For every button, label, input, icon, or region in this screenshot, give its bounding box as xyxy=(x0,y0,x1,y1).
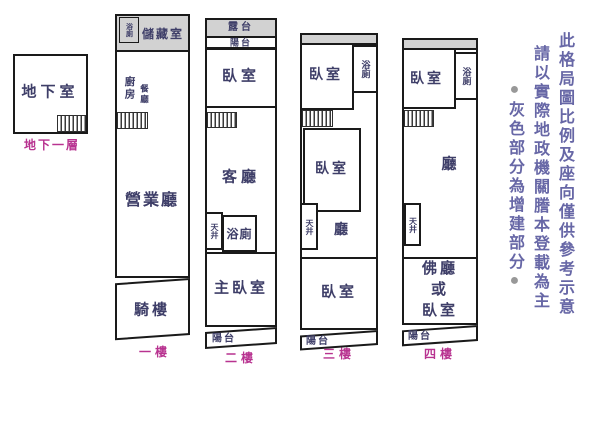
disclaimer-column-3: ●灰色部分為增建部分● xyxy=(502,32,527,421)
disclaimer-text: 此格局圖比例及座向僅供參考示意 請以實際地政機關謄本登載為主 ●灰色部分為增建部… xyxy=(502,32,577,382)
disclaimer-column-1: 此格局圖比例及座向僅供參考示意 xyxy=(552,32,577,372)
floor3-bath-label: 浴廁 xyxy=(361,60,370,78)
floor4-bath-label: 浴廁 xyxy=(462,67,471,85)
basement-room-label: 地下室 xyxy=(21,86,78,101)
floor3-light-well-label: 天井 xyxy=(305,219,313,235)
floor3-top-bedroom-label: 臥室 xyxy=(309,69,343,83)
floor1-storage-label: 儲藏室 xyxy=(142,28,184,40)
floor2-bottom-balcony: 陽台 xyxy=(205,327,277,349)
floor3-balcony-label: 陽台 xyxy=(306,337,330,347)
floorplan-diagram: 地下室 地下一層 浴廁 儲藏室 廚房 餐廳 營業廳 騎樓 一樓 露台 陽台 臥室… xyxy=(0,0,600,422)
floor2-partition-line xyxy=(205,106,277,108)
floor4-stairs xyxy=(404,110,434,127)
floor3-hall-label: 廳 xyxy=(334,224,348,238)
gray-bullet-icon: ● xyxy=(506,81,523,101)
floor2-bottom-balcony-label: 陽台 xyxy=(212,334,236,344)
floor1-plan xyxy=(115,14,190,278)
floor4-buddha-line2: 或 xyxy=(402,280,478,301)
floor4-balcony: 陽台 xyxy=(402,325,478,346)
floor3-middle-bedroom-label: 臥室 xyxy=(315,163,349,177)
disclaimer-column-3-text: 灰色部分為增建部分 xyxy=(506,101,523,272)
floor4-buddha-or-bedroom-label: 佛廳 或 臥室 xyxy=(402,259,478,322)
floor3-bath-room: 浴廁 xyxy=(352,45,378,93)
floor2-partition-line xyxy=(205,252,277,254)
floor3-light-well: 天井 xyxy=(300,203,318,250)
basement-floor-label: 地下一層 xyxy=(24,139,80,151)
floor1-dining-label: 餐廳 xyxy=(140,84,149,105)
floor4-light-well-label: 天井 xyxy=(409,217,417,233)
floor2-master-bedroom-label: 主臥室 xyxy=(214,282,268,297)
floor4-hall-label: 廳 xyxy=(441,158,456,173)
floor2-light-well: 天井 xyxy=(205,212,223,250)
floor2-bath-label: 浴廁 xyxy=(226,225,252,242)
floor4-light-well: 天井 xyxy=(404,203,421,246)
floor3-partition-line xyxy=(300,257,378,259)
basement-stairs xyxy=(57,115,86,132)
floor2-stairs xyxy=(207,112,237,128)
floor1-stairs xyxy=(117,112,148,129)
floor1-kitchen-label: 廚房 xyxy=(123,76,134,101)
floor4-bedroom-label: 臥室 xyxy=(410,73,444,87)
floor2-floor-label: 二樓 xyxy=(225,352,257,364)
floor4-buddha-line3: 臥室 xyxy=(402,301,478,322)
disclaimer-column-2: 請以實際地政機關謄本登載為主 xyxy=(527,32,552,385)
floor2-top-balcony-label: 陽台 xyxy=(230,39,252,48)
floor2-bedroom-label: 臥室 xyxy=(222,70,260,85)
floor1-floor-label: 一樓 xyxy=(139,346,171,358)
gray-bullet-icon: ● xyxy=(506,272,523,292)
floor4-buddha-line1: 佛廳 xyxy=(402,259,478,280)
floor1-arcade-label: 騎樓 xyxy=(134,299,170,320)
floor1-business-hall-label: 營業廳 xyxy=(125,193,179,209)
floor3-bottom-bedroom-label: 臥室 xyxy=(321,286,357,301)
floor3-floor-label: 三樓 xyxy=(323,348,355,360)
floor2-living-room-label: 客廳 xyxy=(222,171,260,186)
floor4-bath-room: 浴廁 xyxy=(454,52,478,100)
floor4-balcony-label: 陽台 xyxy=(408,332,432,342)
floor1-bath-room: 浴廁 xyxy=(119,17,139,43)
floor4-floor-label: 四樓 xyxy=(424,348,456,360)
floor2-light-well-label: 天井 xyxy=(210,223,218,239)
floor1-arcade: 騎樓 xyxy=(115,278,190,340)
floor3-stairs xyxy=(302,110,333,127)
floor2-bath-room: 浴廁 xyxy=(222,215,257,252)
floor2-roof-terrace-label: 露台 xyxy=(228,23,254,33)
floor1-bath-label: 浴廁 xyxy=(126,23,133,37)
